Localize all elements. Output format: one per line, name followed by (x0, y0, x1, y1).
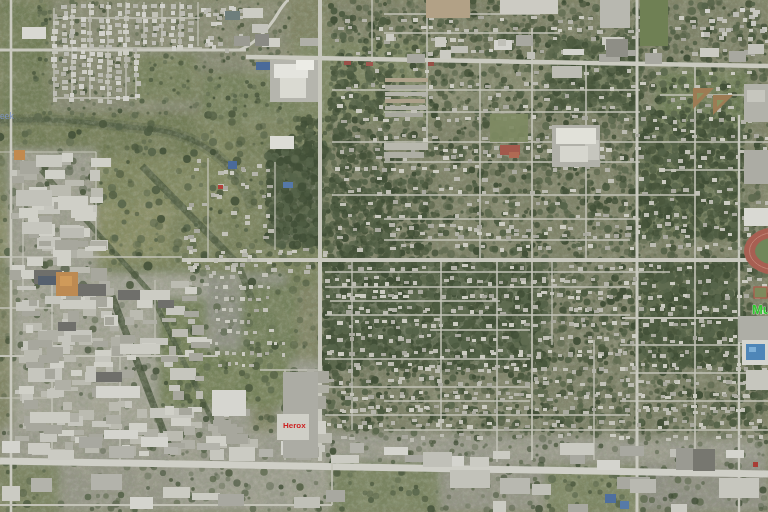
svg-text:Creek: Creek (0, 111, 14, 121)
svg-text:Mu: Mu (752, 302, 768, 317)
svg-text:Herox: Herox (283, 421, 306, 430)
